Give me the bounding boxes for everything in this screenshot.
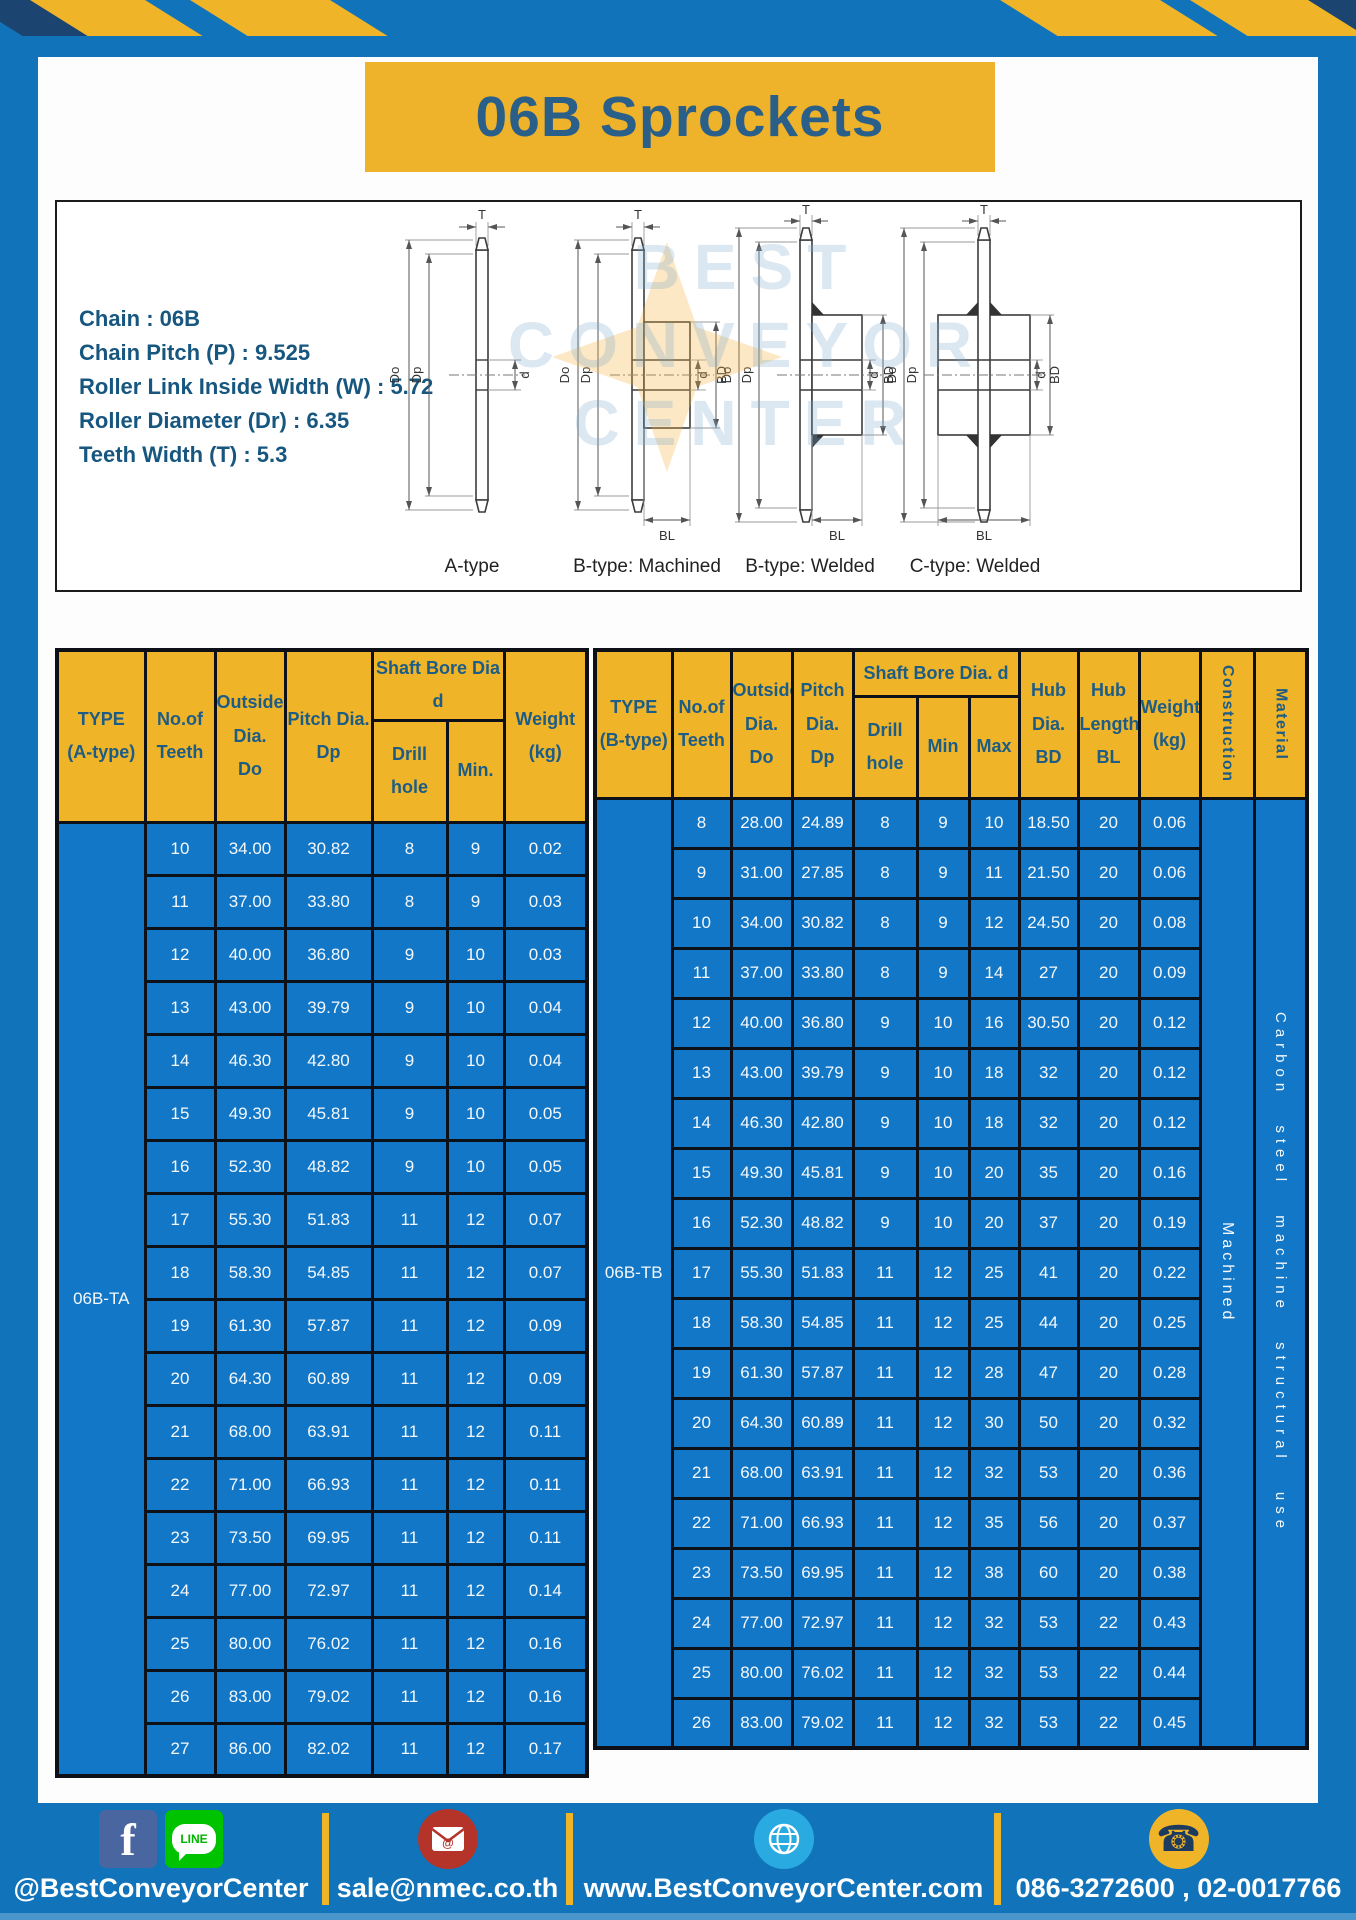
line-bubble: LINE [172,1824,216,1854]
email-icon: @ [418,1809,478,1869]
table-cell: 20 [1078,1398,1139,1448]
table-cell: 13 [672,1048,731,1098]
th-teeth-a: No.of Teeth [145,650,215,822]
type-cell-b: 06B-TB [595,798,672,1748]
table-cell: 0.03 [504,928,587,981]
table-cell: 64.30 [731,1398,792,1448]
table-cell: 72.97 [285,1564,372,1617]
table-cell: 20 [1078,1248,1139,1298]
table-cell: 12 [447,1511,504,1564]
th-max-b: Max [969,696,1019,798]
table-cell: 0.03 [504,875,587,928]
table-cell: 30.50 [1019,998,1078,1048]
table-cell: 28.00 [731,798,792,848]
table-cell: 51.83 [792,1248,853,1298]
b-type-machined-figure: T Do Dp d BD BL [562,210,732,582]
table-cell: 20 [1078,898,1139,948]
table-cell: 12 [447,1670,504,1723]
th-outside-b: Outside Dia. Do [731,650,792,798]
table-cell: 12 [917,1298,969,1348]
table-cell: 55.30 [731,1248,792,1298]
table-cell: 20 [1078,848,1139,898]
table-cell: 49.30 [731,1148,792,1198]
footer-social-handle: @BestConveyorCenter [14,1873,309,1904]
envelope-glyph: @ [431,1826,465,1852]
th-pitch-a: Pitch Dia. Dp [285,650,372,822]
table-cell: 14 [145,1034,215,1087]
b-type-machined-caption: B-type: Machined [562,556,732,578]
table-cell: 52.30 [215,1140,285,1193]
th-teeth-b: No.of Teeth [672,650,731,798]
table-cell: 8 [853,848,917,898]
table-cell: 0.09 [1139,948,1200,998]
table-cell: 60.89 [792,1398,853,1448]
table-cell: 14 [672,1098,731,1148]
table-cell: 9 [853,998,917,1048]
spec-line-roller-width: Roller Link Inside Width (W) : 5.72 [79,370,433,404]
dim-label-BL: BL [659,528,675,543]
table-cell: 10 [672,898,731,948]
table-row: 06B-TB828.0024.89891018.50200.06Machined… [595,798,1307,848]
table-cell: 20 [969,1148,1019,1198]
table-cell: 63.91 [792,1448,853,1498]
table-cell: 16 [145,1140,215,1193]
th-weight-a: Weight (kg) [504,650,587,822]
table-cell: 43.00 [731,1048,792,1098]
table-cell: 57.87 [792,1348,853,1398]
footer-divider [566,1813,573,1905]
table-cell: 32 [969,1698,1019,1748]
table-cell: 30 [969,1398,1019,1448]
table-cell: 72.97 [792,1598,853,1648]
table-cell: 0.12 [1139,998,1200,1048]
table-cell: 86.00 [215,1723,285,1776]
dim-label-d: d [695,371,710,378]
dim-label-Dp: Dp [739,367,754,384]
table-cell: 80.00 [215,1617,285,1670]
c-type-welded-caption: C-type: Welded [890,556,1060,578]
table-cell: 24 [672,1598,731,1648]
dim-label-d: d [517,371,532,378]
dim-label-T: T [634,207,642,222]
table-cell: 48.82 [285,1140,372,1193]
table-cell: 22 [145,1458,215,1511]
table-cell: 12 [969,898,1019,948]
table-cell: 9 [372,1140,447,1193]
dim-label-Do: Do [387,367,402,384]
table-cell: 24.89 [792,798,853,848]
table-cell: 64.30 [215,1352,285,1405]
th-construction: Construction [1200,650,1254,798]
table-cell: 80.00 [731,1648,792,1698]
table-cell: 0.05 [504,1087,587,1140]
table-cell: 11 [372,1299,447,1352]
table-cell: 41 [1019,1248,1078,1298]
table-cell: 12 [917,1248,969,1298]
table-cell: 9 [372,928,447,981]
table-cell: 27 [1019,948,1078,998]
dim-label-T: T [478,207,486,222]
line-icon: LINE [165,1810,223,1868]
table-cell: 63.91 [285,1405,372,1458]
table-cell: 73.50 [731,1548,792,1598]
table-cell: 0.07 [504,1246,587,1299]
table-cell: 35 [1019,1148,1078,1198]
table-cell: 0.02 [504,822,587,875]
table-cell: 45.81 [285,1087,372,1140]
phone-icon: ☎ [1149,1809,1209,1869]
table-cell: 11 [372,1564,447,1617]
table-cell: 20 [1078,948,1139,998]
table-cell: 66.93 [792,1498,853,1548]
table-cell: 69.95 [792,1548,853,1598]
th-hub-dia-b: Hub Dia. BD [1019,650,1078,798]
table-cell: 24.50 [1019,898,1078,948]
table-cell: 0.17 [504,1723,587,1776]
table-cell: 61.30 [215,1299,285,1352]
table-cell: 12 [917,1598,969,1648]
table-cell: 0.38 [1139,1548,1200,1598]
page: 06B Sprockets Chain : 06B Chain Pitch (P… [0,0,1356,1920]
table-cell: 0.04 [504,981,587,1034]
table-cell: 61.30 [731,1348,792,1398]
title-banner: 06B Sprockets [365,62,995,172]
footer-email-address: sale@nmec.co.th [337,1873,558,1904]
table-cell: 0.44 [1139,1648,1200,1698]
table-cell: 39.79 [792,1048,853,1098]
dim-label-d: d [1033,371,1048,378]
table-cell: 40.00 [731,998,792,1048]
table-cell: 71.00 [731,1498,792,1548]
table-cell: 0.12 [1139,1098,1200,1148]
table-cell: 10 [145,822,215,875]
a-type-figure: T Do Dp d A-type [387,210,557,582]
table-cell: 26 [145,1670,215,1723]
table-cell: 51.83 [285,1193,372,1246]
table-cell: 12 [447,1299,504,1352]
table-cell: 20 [1078,798,1139,848]
table-cell: 53 [1019,1448,1078,1498]
table-cell: 9 [853,1098,917,1148]
table-cell: 32 [969,1598,1019,1648]
table-cell: 18 [145,1246,215,1299]
table-cell: 83.00 [731,1698,792,1748]
table-cell: 11 [969,848,1019,898]
bottom-edge-strip [0,1913,1356,1920]
table-cell: 12 [917,1398,969,1448]
table-cell: 58.30 [731,1298,792,1348]
table-cell: 0.14 [504,1564,587,1617]
table-cell: 38 [969,1548,1019,1598]
table-cell: 0.06 [1139,848,1200,898]
table-cell: 76.02 [792,1648,853,1698]
b-type-welded-drawing: T Do Dp d BD [725,210,895,550]
table-cell: 34.00 [731,898,792,948]
table-cell: 48.82 [792,1198,853,1248]
table-cell: 21 [145,1405,215,1458]
table-cell: 32 [1019,1098,1078,1148]
table-cell: 11 [372,1617,447,1670]
table-cell: 66.93 [285,1458,372,1511]
table-cell: 19 [672,1348,731,1398]
table-cell: 20 [1078,1148,1139,1198]
table-cell: 21 [672,1448,731,1498]
spec-line-pitch: Chain Pitch (P) : 9.525 [79,336,433,370]
table-cell: 11 [672,948,731,998]
table-cell: 27.85 [792,848,853,898]
table-cell: 9 [447,822,504,875]
table-cell: 20 [1078,1548,1139,1598]
table-cell: 22 [1078,1698,1139,1748]
table-cell: 31.00 [731,848,792,898]
footer-website: www.BestConveyorCenter.com [573,1809,994,1904]
table-cell: 10 [917,1198,969,1248]
dim-label-Dp: Dp [578,367,593,384]
table-cell: 8 [672,798,731,848]
table-cell: 11 [853,1298,917,1348]
table-cell: 10 [447,1087,504,1140]
th-type-b: TYPE (B-type) [595,650,672,798]
table-cell: 25 [969,1298,1019,1348]
top-decorative-band [0,0,1356,57]
table-cell: 12 [917,1548,969,1598]
table-cell: 10 [917,998,969,1048]
table-cell: 0.12 [1139,1048,1200,1098]
table-cell: 0.11 [504,1405,587,1458]
table-cell: 18 [672,1298,731,1348]
table-cell: 20 [1078,1348,1139,1398]
table-cell: 11 [372,1352,447,1405]
table-cell: 14 [969,948,1019,998]
th-drill-hole-b: Drill hole [853,696,917,798]
table-cell: 11 [372,1511,447,1564]
dim-label-T: T [802,202,810,217]
table-cell: 9 [372,981,447,1034]
table-cell: 0.06 [1139,798,1200,848]
table-cell: 13 [145,981,215,1034]
table-cell: 23 [145,1511,215,1564]
b-type-machined-drawing: T Do Dp d BD BL [562,210,732,550]
table-cell: 8 [853,798,917,848]
table-cell: 9 [672,848,731,898]
table-cell: 12 [917,1648,969,1698]
table-cell: 0.16 [1139,1148,1200,1198]
table-cell: 49.30 [215,1087,285,1140]
table-row: 06B-TA1034.0030.82890.02 [57,822,587,875]
table-cell: 34.00 [215,822,285,875]
footer-email: @ sale@nmec.co.th [329,1809,566,1904]
table-cell: 16 [969,998,1019,1048]
table-cell: 20 [1078,1098,1139,1148]
table-cell: 54.85 [792,1298,853,1348]
table-cell: 9 [917,948,969,998]
table-cell: 83.00 [215,1670,285,1723]
diagonal-stripe [1000,0,1218,36]
material-value: Carbon steel machine structural use [1254,798,1307,1748]
table-cell: 20 [145,1352,215,1405]
table-cell: 77.00 [731,1598,792,1648]
table-cell: 10 [917,1148,969,1198]
dim-label-BL: BL [976,528,992,543]
diagonal-stripe [190,0,388,36]
table-cell: 9 [372,1034,447,1087]
table-cell: 16 [672,1198,731,1248]
table-cell: 44 [1019,1298,1078,1348]
globe-icon [754,1809,814,1869]
table-cell: 56 [1019,1498,1078,1548]
table-cell: 20 [672,1398,731,1448]
table-cell: 9 [372,1087,447,1140]
table-cell: 22 [1078,1648,1139,1698]
table-cell: 0.08 [1139,898,1200,948]
table-cell: 12 [447,1352,504,1405]
footer-divider [994,1813,1001,1905]
table-cell: 10 [969,798,1019,848]
table-cell: 33.80 [285,875,372,928]
table-cell: 18 [969,1048,1019,1098]
footer: f LINE @BestConveyorCenter @ sale@nmec.c… [0,1803,1356,1920]
table-cell: 68.00 [731,1448,792,1498]
table-cell: 8 [853,898,917,948]
table-cell: 9 [917,798,969,848]
table-cell: 35 [969,1498,1019,1548]
table-cell: 22 [1078,1598,1139,1648]
spec-panel: Chain : 06B Chain Pitch (P) : 9.525 Roll… [55,200,1302,592]
table-cell: 12 [447,1246,504,1299]
table-cell: 11 [853,1698,917,1748]
table-cell: 0.11 [504,1458,587,1511]
table-cell: 32 [969,1648,1019,1698]
c-type-welded-drawing: T Do Dp d [890,210,1060,550]
table-cell: 11 [853,1448,917,1498]
table-cell: 9 [853,1198,917,1248]
chain-specs: Chain : 06B Chain Pitch (P) : 9.525 Roll… [79,302,433,472]
table-cell: 76.02 [285,1617,372,1670]
table-cell: 20 [1078,1298,1139,1348]
table-cell: 12 [447,1193,504,1246]
table-cell: 57.87 [285,1299,372,1352]
th-hub-length-b: Hub Length BL [1078,650,1139,798]
table-cell: 28 [969,1348,1019,1398]
table-cell: 12 [447,1617,504,1670]
table-cell: 53 [1019,1698,1078,1748]
globe-glyph [764,1819,804,1859]
table-cell: 8 [372,822,447,875]
table-cell: 9 [447,875,504,928]
table-cell: 23 [672,1548,731,1598]
table-cell: 21.50 [1019,848,1078,898]
footer-social-icons: f LINE [99,1809,223,1869]
dim-label-Do: Do [557,367,572,384]
table-cell: 11 [372,1458,447,1511]
table-cell: 11 [372,1723,447,1776]
dim-label-Dp: Dp [904,367,919,384]
dim-label-Dp: Dp [409,367,424,384]
table-cell: 33.80 [792,948,853,998]
table-cell: 0.05 [504,1140,587,1193]
table-cell: 53 [1019,1598,1078,1648]
table-cell: 54.85 [285,1246,372,1299]
table-cell: 0.37 [1139,1498,1200,1548]
table-cell: 10 [447,1034,504,1087]
table-cell: 26 [672,1698,731,1748]
facebook-icon: f [99,1810,157,1868]
table-cell: 8 [372,875,447,928]
table-cell: 0.36 [1139,1448,1200,1498]
table-cell: 32 [969,1448,1019,1498]
table-cell: 0.45 [1139,1698,1200,1748]
footer-phone: ☎ 086-3272600 , 02-0017766 [1001,1809,1356,1904]
table-cell: 0.11 [504,1511,587,1564]
th-material: Material [1254,650,1307,798]
table-cell: 20 [1078,1048,1139,1098]
table-cell: 0.16 [504,1670,587,1723]
table-cell: 36.80 [285,928,372,981]
table-cell: 12 [672,998,731,1048]
table-cell: 22 [672,1498,731,1548]
table-cell: 42.80 [285,1034,372,1087]
table-cell: 82.02 [285,1723,372,1776]
dim-label-Do: Do [719,367,734,384]
table-cell: 25 [672,1648,731,1698]
table-cell: 24 [145,1564,215,1617]
table-cell: 68.00 [215,1405,285,1458]
th-shaft-bore-group-b: Shaft Bore Dia. d [853,650,1019,696]
table-cell: 60.89 [285,1352,372,1405]
dim-label-Do: Do [884,367,899,384]
table-cell: 20 [1078,1198,1139,1248]
footer-social: f LINE @BestConveyorCenter [0,1809,322,1904]
table-cell: 9 [853,1048,917,1098]
table-cell: 8 [853,948,917,998]
th-weight-b: Weight (kg) [1139,650,1200,798]
table-cell: 0.07 [504,1193,587,1246]
table-cell: 50 [1019,1398,1078,1448]
page-title: 06B Sprockets [475,84,884,150]
table-cell: 47 [1019,1348,1078,1398]
table-cell: 20 [1078,1448,1139,1498]
table-cell: 0.28 [1139,1348,1200,1398]
table-cell: 0.09 [504,1299,587,1352]
table-cell: 9 [917,848,969,898]
spec-line-roller-dia: Roller Diameter (Dr) : 6.35 [79,404,433,438]
table-cell: 37.00 [731,948,792,998]
th-pitch-b: Pitch Dia. Dp [792,650,853,798]
table-cell: 11 [145,875,215,928]
table-cell: 71.00 [215,1458,285,1511]
table-cell: 19 [145,1299,215,1352]
th-min-a: Min. [447,720,504,822]
b-type-welded-caption: B-type: Welded [725,556,895,578]
table-cell: 11 [372,1405,447,1458]
table-cell: 10 [917,1048,969,1098]
table-cell: 73.50 [215,1511,285,1564]
table-cell: 9 [917,898,969,948]
table-cell: 12 [917,1698,969,1748]
construction-value: Machined [1200,798,1254,1748]
b-type-welded-figure: T Do Dp d BD [725,210,895,582]
table-cell: 32 [1019,1048,1078,1098]
dim-label-BL: BL [829,528,845,543]
table-cell: 30.82 [285,822,372,875]
table-cell: 10 [447,1140,504,1193]
table-cell: 0.19 [1139,1198,1200,1248]
table-cell: 27 [145,1723,215,1776]
table-cell: 52.30 [731,1198,792,1248]
table-cell: 11 [853,1648,917,1698]
table-cell: 25 [145,1617,215,1670]
table-cell: 11 [853,1548,917,1598]
